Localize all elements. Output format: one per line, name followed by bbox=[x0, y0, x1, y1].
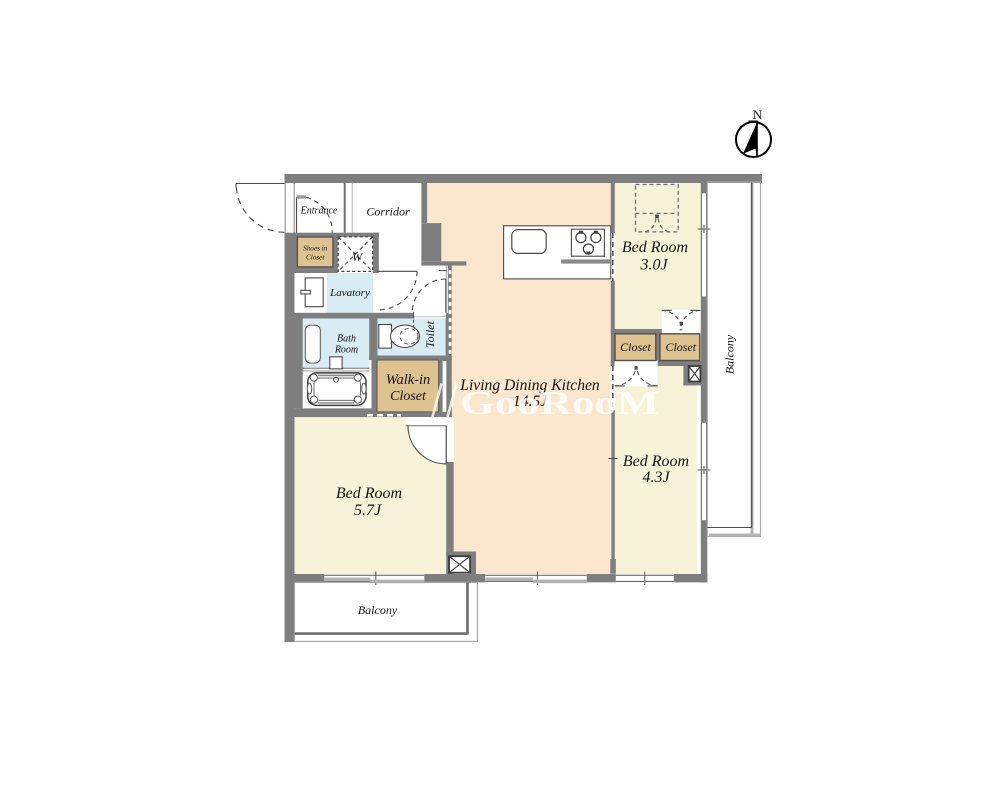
svg-text:Toilet: Toilet bbox=[423, 320, 437, 348]
svg-text:Bed Room: Bed Room bbox=[336, 485, 402, 502]
svg-text:W: W bbox=[352, 250, 363, 264]
svg-text:Closet: Closet bbox=[306, 254, 325, 262]
svg-text:Closet: Closet bbox=[390, 389, 427, 404]
svg-text:5.7J: 5.7J bbox=[354, 502, 382, 519]
svg-text:N: N bbox=[753, 107, 763, 122]
svg-text:Closet: Closet bbox=[665, 340, 696, 354]
svg-text:Balcony: Balcony bbox=[358, 603, 398, 617]
svg-text:GooRooM: GooRooM bbox=[460, 385, 659, 422]
svg-text:Bed Room: Bed Room bbox=[623, 453, 689, 470]
svg-text:Room: Room bbox=[334, 345, 358, 356]
svg-text:Shoes in: Shoes in bbox=[303, 245, 328, 253]
svg-text:Bath: Bath bbox=[337, 334, 356, 345]
svg-text:Walk-in: Walk-in bbox=[386, 372, 431, 388]
svg-text:4.3J: 4.3J bbox=[642, 469, 670, 486]
svg-text:Balcony: Balcony bbox=[723, 334, 737, 374]
svg-text:Lavatory: Lavatory bbox=[329, 287, 370, 299]
svg-text:Bed Room: Bed Room bbox=[622, 239, 688, 256]
svg-text:Entrance: Entrance bbox=[300, 206, 338, 217]
svg-text:Closet: Closet bbox=[620, 340, 651, 354]
svg-text:Corridor: Corridor bbox=[366, 205, 410, 219]
svg-text:3.0J: 3.0J bbox=[639, 257, 668, 274]
